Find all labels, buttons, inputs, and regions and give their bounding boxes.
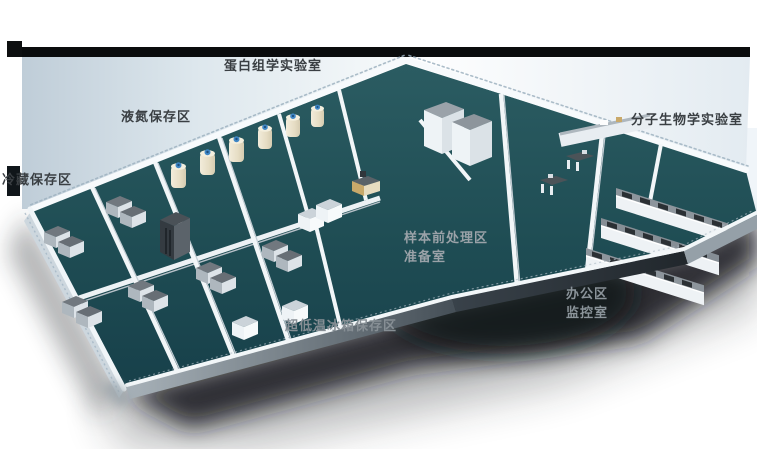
room-label-office-area: 办公区 [566,287,608,301]
room-label-proteomics-lab: 蛋白组学实验室 [224,59,322,73]
room-label-cold-storage-area: 冷藏保存区 [2,173,72,187]
room-label-monitoring-room: 监控室 [566,306,608,320]
room-label-molecular-biology-lab: 分子生物学实验室 [631,113,743,127]
floorplan-illustration [0,0,757,449]
lab-3d-floorplan: 蛋白组学实验室 液氮保存区 冷藏保存区 分子生物学实验室 样本前处理区 准备室 … [0,0,757,449]
room-label-liquid-nitrogen-area: 液氮保存区 [121,110,191,124]
room-label-ult-freezer-area: 超低温冰箱保存区 [285,319,397,333]
room-label-preparation-room: 准备室 [404,250,446,264]
room-label-sample-pretreatment-area: 样本前处理区 [404,231,488,245]
